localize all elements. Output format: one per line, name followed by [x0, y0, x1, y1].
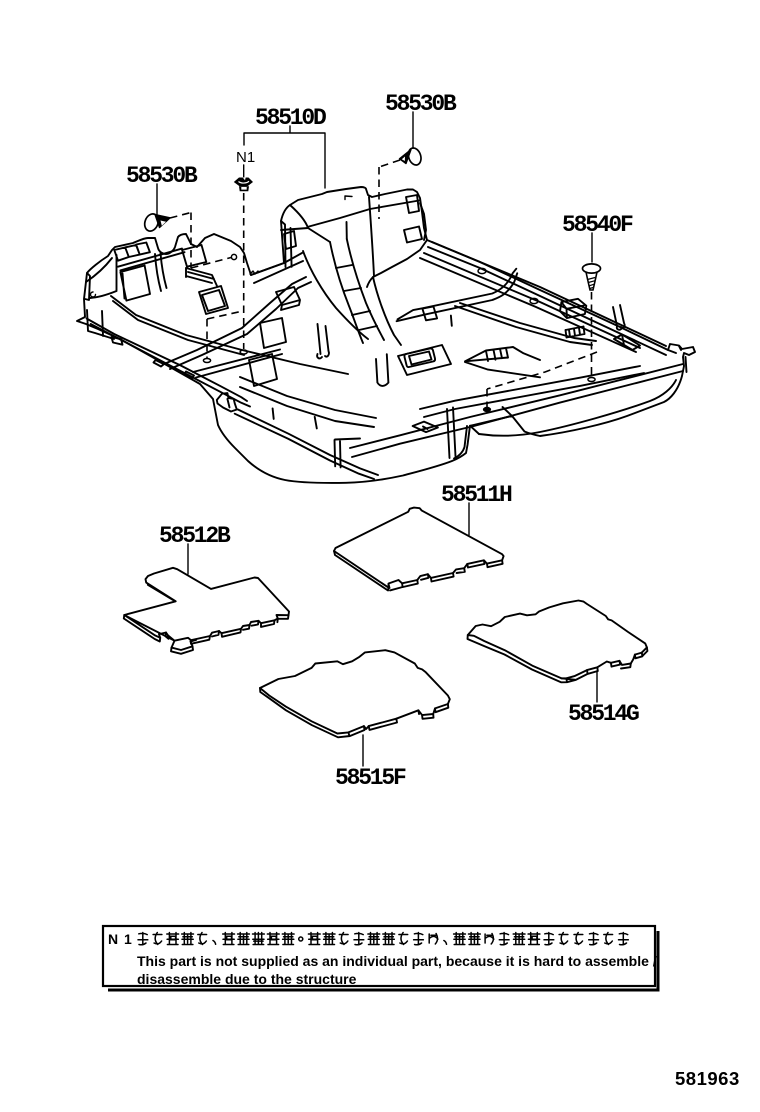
- svg-text:58515F: 58515F: [335, 765, 406, 791]
- svg-text:disassemble due to the structu: disassemble due to the structure: [137, 971, 357, 987]
- svg-text:58514G: 58514G: [568, 701, 639, 727]
- svg-text:58530B: 58530B: [385, 91, 457, 117]
- svg-text:N 1: N 1: [108, 931, 133, 947]
- svg-text:58540F: 58540F: [562, 212, 633, 238]
- svg-text:58512B: 58512B: [159, 523, 231, 549]
- svg-text:581963: 581963: [675, 1068, 740, 1089]
- svg-text:58511H: 58511H: [441, 482, 512, 508]
- svg-text:58530B: 58530B: [126, 163, 198, 189]
- svg-text:This part is not supplied as a: This part is not supplied as an individu…: [137, 953, 657, 969]
- svg-text:N1: N1: [236, 149, 255, 166]
